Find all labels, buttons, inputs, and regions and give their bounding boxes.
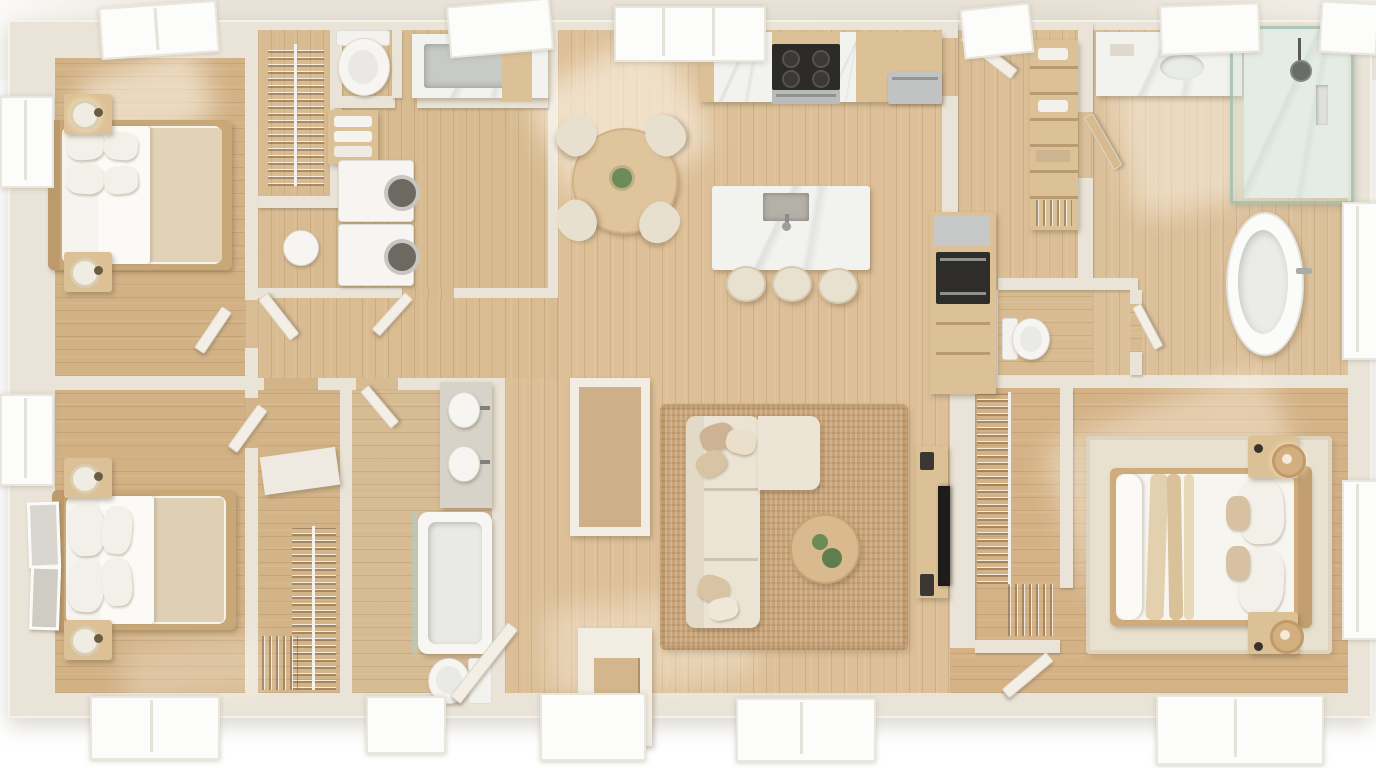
floor-plan — [0, 0, 1376, 768]
vanity-sink — [448, 392, 480, 428]
accent-pillow — [1226, 546, 1250, 580]
window-mullion — [150, 700, 153, 752]
oven-handle — [940, 292, 986, 295]
dryer-door — [384, 239, 420, 275]
headboard — [1298, 466, 1312, 628]
folded-clothes — [262, 636, 298, 690]
vase — [1254, 642, 1263, 651]
speaker — [920, 574, 934, 596]
vanity-basin — [1160, 54, 1204, 80]
closet1-bottom-wall — [258, 196, 342, 208]
skylight — [960, 2, 1035, 59]
lamp-accent — [1282, 454, 1292, 464]
sofa-seam — [704, 488, 758, 491]
pillow — [67, 503, 106, 557]
hall-console-nook — [570, 378, 650, 536]
lamp-accent — [94, 472, 103, 481]
island-faucet-base — [782, 222, 791, 231]
wc-door-jamb — [1130, 290, 1142, 304]
window-mullion — [1234, 699, 1237, 757]
skylight — [1319, 1, 1376, 56]
bar-stool — [818, 268, 858, 304]
closet-rod — [1008, 392, 1011, 586]
hallway-floor — [258, 298, 558, 378]
lamp-accent — [94, 108, 103, 117]
vanity-tray — [1110, 44, 1134, 56]
window-mullion — [24, 100, 27, 180]
skylight-mullion — [712, 8, 715, 56]
entry-floor — [505, 378, 558, 693]
skylight — [614, 6, 766, 62]
fridge-top — [934, 216, 990, 246]
dish-stack — [1038, 100, 1068, 112]
closet3-bottom-wall — [975, 640, 1060, 653]
towels — [334, 146, 372, 157]
toilet-lid — [348, 50, 378, 84]
tv-screen — [938, 486, 950, 586]
sink-faucet — [480, 460, 490, 464]
vase — [1254, 444, 1263, 453]
bathtub2-interior — [428, 522, 482, 644]
bath1-bottom-wall — [333, 96, 395, 108]
skylight — [98, 0, 219, 60]
pantry-shelf — [1030, 144, 1078, 147]
bed-blanket — [148, 498, 224, 622]
dishwasher-handle — [892, 77, 938, 80]
lamp-accent — [94, 266, 103, 275]
towels — [334, 116, 372, 127]
beige-throw — [1184, 474, 1194, 620]
bar-stool — [726, 266, 766, 302]
duvet-roll-edge — [1116, 474, 1142, 620]
linen-stack — [1036, 150, 1070, 162]
living-closet3-wall — [950, 378, 975, 648]
beige-throw — [1167, 474, 1184, 620]
burner — [812, 50, 830, 68]
window-mullion — [1356, 484, 1359, 632]
shower-niche — [1316, 85, 1328, 125]
window-mullion — [24, 398, 27, 478]
pantry-items — [1036, 200, 1072, 226]
front-door-porch — [540, 693, 646, 761]
burner — [812, 70, 830, 88]
bedroom1-door-opening — [245, 300, 258, 348]
hanging-clothes — [977, 394, 1009, 584]
dish-stack — [1038, 48, 1068, 60]
wc-top-wall — [998, 278, 1138, 290]
framed-artwork — [29, 565, 61, 630]
closet3-right-wall — [1060, 388, 1073, 588]
bedroom3-door-opening — [950, 648, 975, 693]
wc-door-jamb — [1130, 352, 1142, 375]
sofa-seam — [704, 558, 758, 561]
window-right — [1342, 480, 1376, 640]
sofa-chaise — [758, 416, 820, 490]
plant-centerpiece — [612, 168, 632, 188]
kitchen-pantry-door-opening — [942, 38, 958, 96]
bathtub-interior — [1238, 230, 1288, 334]
window-bottom — [90, 696, 220, 760]
window-right — [1342, 202, 1376, 360]
pantry-shelf — [1030, 170, 1078, 173]
bar-stool — [772, 266, 812, 302]
tub-faucet — [1296, 268, 1312, 274]
window-bottom — [1156, 695, 1324, 765]
burner — [782, 50, 800, 68]
oven-handle — [940, 258, 986, 261]
pantry-shelf — [1030, 196, 1078, 199]
cabinet-seam — [936, 322, 990, 325]
skylight — [446, 0, 554, 58]
bathroom2-door-opening — [356, 378, 398, 390]
kitchen-counter-marble — [840, 32, 856, 102]
window-mullion — [800, 702, 803, 754]
sink-faucet — [480, 406, 490, 410]
closet-rod — [294, 44, 297, 186]
shower-head — [1290, 60, 1312, 82]
speaker — [920, 452, 934, 470]
pantry-shelf — [1030, 66, 1078, 69]
towels — [334, 131, 372, 142]
lamp-accent — [1280, 630, 1290, 640]
toilet-lid — [1020, 326, 1042, 352]
vanity-sink — [448, 446, 480, 482]
closet2-door-opening — [264, 378, 318, 390]
bed-blanket — [146, 128, 222, 262]
folded-clothes — [1008, 584, 1056, 636]
pillow — [65, 163, 105, 195]
window-bottom — [366, 696, 446, 754]
window-bottom — [736, 698, 876, 762]
closet-rod — [312, 526, 315, 690]
washer-door — [384, 175, 420, 211]
bath1-partition — [392, 30, 402, 98]
framed-artwork — [27, 501, 61, 568]
oven-front — [772, 90, 840, 104]
burner — [782, 70, 800, 88]
lamp-accent — [94, 634, 103, 643]
skylight — [1159, 2, 1261, 55]
cabinet-seam — [936, 352, 990, 355]
accent-pillow — [1226, 496, 1250, 530]
window-mullion — [1356, 206, 1359, 352]
laundry-hamper — [283, 230, 319, 266]
pillow — [103, 131, 139, 162]
skylight-mullion — [662, 8, 665, 56]
pantry-shelf — [1030, 92, 1078, 95]
window-left — [0, 394, 54, 486]
plant — [822, 548, 842, 568]
plant — [812, 534, 828, 550]
tub-glass-screen — [412, 512, 418, 654]
window-left — [0, 96, 54, 188]
oven-handle — [776, 94, 836, 97]
pantry-shelf — [1030, 118, 1078, 121]
pillow — [66, 559, 106, 613]
